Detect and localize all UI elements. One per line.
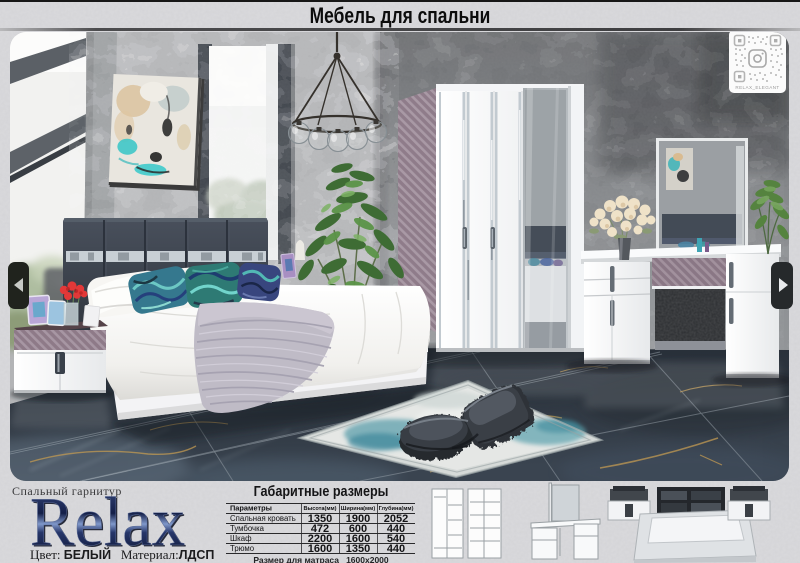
svg-text:440: 440 (387, 543, 405, 554)
svg-text:1350: 1350 (346, 543, 370, 554)
svg-text:Ширина(мм): Ширина(мм) (341, 506, 376, 512)
svg-text:Трюмо: Трюмо (230, 544, 255, 553)
svg-text:Глубина(мм): Глубина(мм) (379, 505, 414, 512)
svg-text:RELAX_ELEGANT: RELAX_ELEGANT (735, 85, 779, 90)
svg-text:Спальная кровать: Спальная кровать (230, 514, 296, 523)
svg-text:Тумбочка: Тумбочка (230, 524, 265, 533)
svg-text:Высота(мм): Высота(мм) (303, 506, 336, 512)
svg-text:Шкаф: Шкаф (230, 534, 252, 543)
svg-text:Параметры: Параметры (230, 504, 272, 513)
svg-text:1600: 1600 (308, 543, 332, 554)
